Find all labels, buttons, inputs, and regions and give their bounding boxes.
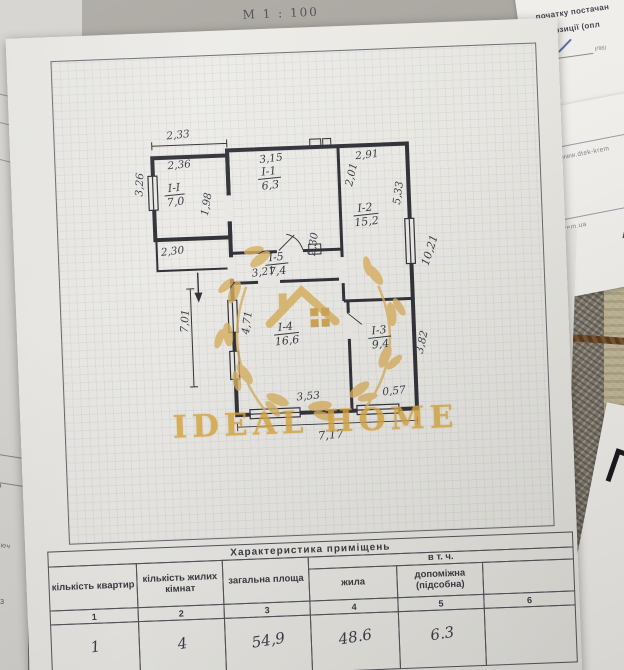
printed-corner-mark	[606, 448, 624, 484]
entrance-arrow-head	[194, 292, 202, 302]
room-label-r1: І-1 6,3	[257, 165, 283, 193]
dimension-line	[152, 139, 227, 150]
scale-note: М 1 : 100	[5, 0, 557, 31]
paper-text-fragment: ка	[0, 481, 3, 489]
room-label-r2: І-2 15,2	[352, 201, 379, 229]
floor-plan-drawing	[51, 43, 555, 545]
plan-frame: І-І 7,0 І-1 6,3 І-2 15,2 І-5 7,4 І-4 16,…	[50, 42, 554, 544]
paper-text-fragment: шлюч	[0, 540, 11, 550]
dim-porch-width: 2,30	[160, 244, 185, 258]
value-cell-6	[484, 604, 578, 665]
value-cell-2: 4	[138, 618, 227, 670]
value-cell-3: 54,9	[224, 615, 313, 670]
dim-left-lower: 7,01	[179, 309, 192, 333]
value-cell-1: 1	[50, 621, 141, 670]
partition-wall	[232, 279, 343, 283]
dim-annex-left: 3,26	[133, 173, 146, 197]
dim-r2-width: 2,91	[355, 148, 380, 162]
dimension-line	[186, 289, 198, 387]
partition-wall	[344, 298, 413, 301]
pen-signature-stroke	[558, 39, 572, 53]
col-header-4: жила	[308, 565, 398, 601]
dim-bottom-total: 7,17	[317, 427, 344, 443]
value-cell-5: 6.3	[398, 608, 487, 669]
signature-caption: (ПІБ)	[594, 45, 606, 53]
value-cell-4: 48.6	[310, 611, 401, 670]
receipt-url-top: www.dtek-krem	[560, 145, 610, 161]
col-header-5: допоміжна (підсобна)	[396, 562, 484, 598]
floor-plan-sheet: М 1 : 100	[6, 18, 583, 670]
dim-top-annex: 2,33	[166, 128, 191, 142]
dim-r1-width: 3,15	[259, 152, 284, 166]
col-header-2: кількість жилих кімнат	[136, 560, 225, 608]
paper-text-fragment: з	[0, 596, 5, 606]
col-header-6	[482, 558, 575, 595]
dim-r3-width: 0,57	[382, 384, 407, 398]
receipt-rule-line	[555, 192, 624, 222]
col-header-3: загальна площа	[222, 557, 311, 605]
dim-r4-width: 3,53	[296, 389, 320, 403]
photo-of-technical-passport: ка шлюч з початку постачан пропозиції (о…	[0, 0, 624, 670]
entrance-arrow	[198, 273, 199, 295]
room-label-annex: І-І 7,0	[163, 181, 186, 209]
col-header-1: кількість квартир	[48, 563, 139, 611]
dim-annex-width: 2,36	[167, 158, 191, 172]
room-label-r3: І-3 9,4	[367, 324, 393, 352]
room-label-r4: І-4 16,6	[273, 320, 300, 348]
